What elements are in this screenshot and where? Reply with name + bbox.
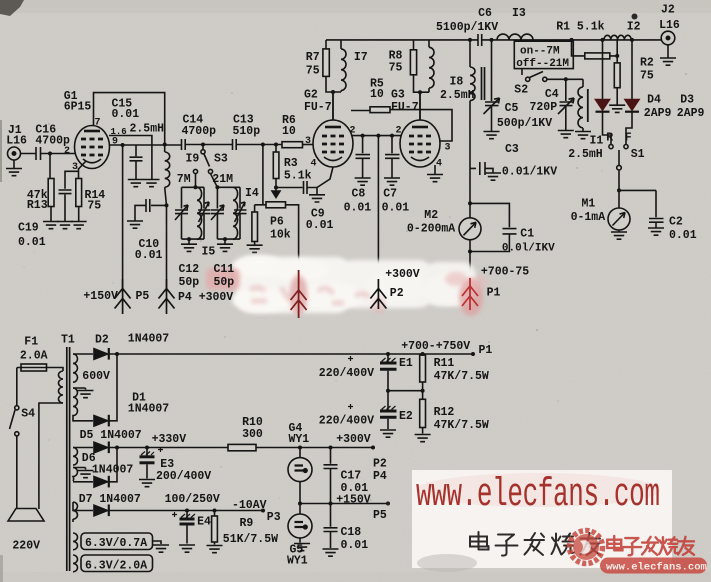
- svg-text:C7: C7: [383, 188, 397, 201]
- svg-text:www.elecfans.com: www.elecfans.com: [606, 562, 707, 574]
- svg-text:C1: C1: [520, 228, 534, 241]
- svg-text:D4: D4: [647, 94, 661, 107]
- svg-text:C4: C4: [545, 88, 559, 101]
- svg-text:10: 10: [282, 125, 296, 138]
- svg-text:0.01: 0.01: [18, 236, 46, 249]
- svg-text:F: F: [625, 132, 632, 145]
- svg-text:P4 +300V: P4 +300V: [178, 291, 233, 304]
- svg-text:2.5mH: 2.5mH: [568, 148, 603, 161]
- svg-text:1.6: 1.6: [111, 127, 127, 137]
- svg-text:P4: P4: [373, 470, 387, 483]
- svg-text:C18: C18: [341, 526, 362, 539]
- svg-text:4700p: 4700p: [182, 125, 217, 138]
- svg-text:C11: C11: [214, 263, 235, 276]
- svg-text:I5: I5: [202, 246, 216, 259]
- svg-text:M1: M1: [582, 198, 596, 211]
- svg-text:2.5mH: 2.5mH: [440, 89, 475, 102]
- svg-text:1N4007: 1N4007: [128, 403, 170, 416]
- svg-text:L16: L16: [6, 135, 27, 148]
- svg-text:2: 2: [396, 126, 402, 137]
- svg-text:220V: 220V: [12, 540, 40, 553]
- svg-text:R9: R9: [240, 517, 254, 530]
- svg-text:0.01: 0.01: [382, 202, 410, 215]
- svg-text:0-1mA: 0-1mA: [571, 211, 606, 224]
- svg-text:R7: R7: [306, 51, 320, 64]
- svg-text:2.5mH: 2.5mH: [130, 122, 165, 135]
- svg-text:500p/1KV: 500p/1KV: [497, 117, 552, 130]
- svg-text:0.01: 0.01: [306, 219, 334, 232]
- svg-text:7M: 7M: [177, 173, 191, 186]
- svg-text:6.3V/0.7A: 6.3V/0.7A: [85, 537, 147, 550]
- svg-text:4: 4: [311, 159, 317, 170]
- svg-text:6.3V/2.0A: 6.3V/2.0A: [85, 560, 147, 573]
- svg-text:R13: R13: [27, 199, 48, 212]
- svg-text:4: 4: [436, 159, 442, 170]
- svg-text:3: 3: [445, 143, 451, 154]
- svg-text:+700-+750V: +700-+750V: [401, 340, 470, 353]
- svg-text:5.1k: 5.1k: [284, 170, 312, 183]
- svg-text:L16: L16: [659, 19, 680, 32]
- svg-text:75: 75: [87, 199, 101, 212]
- svg-text:T1: T1: [61, 334, 75, 347]
- svg-text:21M: 21M: [212, 173, 233, 186]
- svg-text:S4: S4: [21, 408, 35, 421]
- svg-text:www.elecfans.com: www.elecfans.com: [416, 473, 660, 518]
- svg-text:P5: P5: [373, 509, 387, 522]
- svg-text:off--21M: off--21M: [516, 58, 569, 70]
- svg-text:R: R: [606, 132, 613, 145]
- svg-text:0.01/1KV: 0.01/1KV: [502, 166, 557, 179]
- svg-text:I3: I3: [512, 7, 526, 20]
- svg-text:2AP9: 2AP9: [677, 107, 705, 120]
- svg-text:+330V: +330V: [152, 433, 187, 446]
- svg-text:2AP9: 2AP9: [644, 107, 672, 120]
- svg-text:0.01: 0.01: [112, 108, 140, 121]
- svg-text:2: 2: [350, 126, 356, 137]
- svg-text:D5 1N4007: D5 1N4007: [80, 429, 142, 442]
- svg-text:6P15: 6P15: [64, 100, 92, 113]
- svg-text:I9: I9: [186, 153, 200, 166]
- svg-text:0.01: 0.01: [669, 229, 697, 242]
- svg-text:P6: P6: [270, 216, 284, 229]
- svg-text:75: 75: [389, 62, 403, 75]
- svg-text:0.01: 0.01: [135, 249, 163, 262]
- svg-text:FU-7: FU-7: [304, 101, 332, 114]
- svg-text:M2: M2: [424, 209, 438, 222]
- svg-text:R3: R3: [284, 157, 298, 170]
- svg-text:600V: 600V: [82, 370, 110, 383]
- svg-text:P1: P1: [479, 344, 493, 357]
- svg-text:C8: C8: [352, 188, 366, 201]
- svg-text:+150V: +150V: [336, 494, 371, 507]
- svg-text:200/400V: 200/400V: [156, 470, 211, 483]
- svg-text:10: 10: [370, 88, 384, 101]
- svg-text:R1 5.1k: R1 5.1k: [556, 21, 604, 34]
- svg-text:I1: I1: [590, 135, 604, 148]
- svg-text:FU-7: FU-7: [391, 101, 419, 114]
- svg-text:C19: C19: [18, 222, 39, 235]
- svg-text:P1: P1: [487, 287, 501, 300]
- svg-text:I4: I4: [245, 187, 259, 200]
- svg-text:I2: I2: [627, 21, 641, 34]
- svg-text:50p: 50p: [214, 276, 235, 289]
- svg-text:+300V: +300V: [385, 268, 420, 281]
- svg-text:P2: P2: [390, 287, 404, 300]
- svg-text:-10AV: -10AV: [232, 499, 267, 512]
- svg-text:R2: R2: [640, 57, 654, 70]
- svg-text:0.01: 0.01: [341, 539, 369, 552]
- svg-text:3: 3: [305, 136, 311, 147]
- svg-text:7: 7: [95, 118, 101, 129]
- svg-text:F1: F1: [24, 336, 38, 349]
- svg-text:75: 75: [306, 65, 320, 78]
- svg-text:P5: P5: [136, 290, 150, 303]
- svg-text:R11: R11: [434, 357, 455, 370]
- svg-text:1N4007: 1N4007: [92, 464, 134, 477]
- svg-text:+700-75: +700-75: [481, 266, 529, 279]
- svg-text:WY1: WY1: [289, 433, 310, 446]
- svg-text:C17: C17: [341, 470, 362, 483]
- svg-text:2: 2: [64, 146, 70, 157]
- svg-text:D3: D3: [680, 94, 694, 107]
- svg-text:51K/7.5W: 51K/7.5W: [223, 533, 278, 546]
- svg-text:S3: S3: [214, 153, 228, 166]
- svg-text:+150V: +150V: [83, 290, 118, 303]
- svg-text:+300V: +300V: [336, 433, 371, 446]
- svg-text:D7 1N4007: D7 1N4007: [79, 493, 141, 506]
- svg-text:75: 75: [640, 70, 654, 83]
- svg-text:WY1: WY1: [287, 555, 308, 568]
- svg-text:J2: J2: [661, 4, 675, 17]
- svg-text:3: 3: [72, 162, 78, 173]
- svg-text:G3: G3: [391, 89, 405, 102]
- svg-text:1N4007: 1N4007: [128, 333, 170, 346]
- svg-text:C6: C6: [478, 7, 492, 20]
- svg-text:100/250V: 100/250V: [165, 493, 220, 506]
- svg-text:0.0l/IKV: 0.0l/IKV: [502, 243, 555, 255]
- svg-text:0-200mA: 0-200mA: [407, 223, 455, 236]
- svg-text:220/400V: 220/400V: [319, 415, 374, 428]
- svg-text:5100p/1KV: 5100p/1KV: [436, 21, 498, 34]
- svg-text:510p: 510p: [233, 125, 261, 138]
- svg-text:E2: E2: [399, 410, 413, 423]
- svg-text:E4: E4: [197, 516, 211, 529]
- svg-text:47K/7.5W: 47K/7.5W: [434, 419, 489, 432]
- svg-text:47K/7.5W: 47K/7.5W: [434, 370, 489, 383]
- svg-text:220/400V: 220/400V: [319, 367, 374, 380]
- svg-text:S2: S2: [514, 84, 528, 97]
- svg-text:C5: C5: [505, 102, 519, 115]
- svg-text:D2: D2: [95, 334, 109, 347]
- svg-text:S1: S1: [631, 148, 645, 161]
- svg-text:C2: C2: [669, 216, 683, 229]
- svg-text:R12: R12: [434, 406, 455, 419]
- svg-text:C3: C3: [505, 143, 519, 156]
- svg-text:E1: E1: [399, 357, 413, 370]
- svg-text:2.0A: 2.0A: [20, 350, 48, 363]
- svg-text:50p: 50p: [179, 276, 200, 289]
- svg-text:9: 9: [112, 137, 118, 148]
- svg-text:P2: P2: [373, 458, 387, 471]
- svg-text:P3: P3: [267, 511, 281, 524]
- svg-text:300: 300: [242, 428, 263, 441]
- svg-text:I7: I7: [354, 51, 368, 64]
- svg-text:I8: I8: [450, 76, 464, 89]
- svg-text:720P: 720P: [530, 101, 558, 114]
- svg-text:C12: C12: [179, 263, 200, 276]
- svg-text:0.01: 0.01: [344, 202, 372, 215]
- svg-text:10k: 10k: [270, 229, 291, 242]
- svg-text:on--7M: on--7M: [520, 46, 560, 58]
- svg-text:G2: G2: [304, 89, 318, 102]
